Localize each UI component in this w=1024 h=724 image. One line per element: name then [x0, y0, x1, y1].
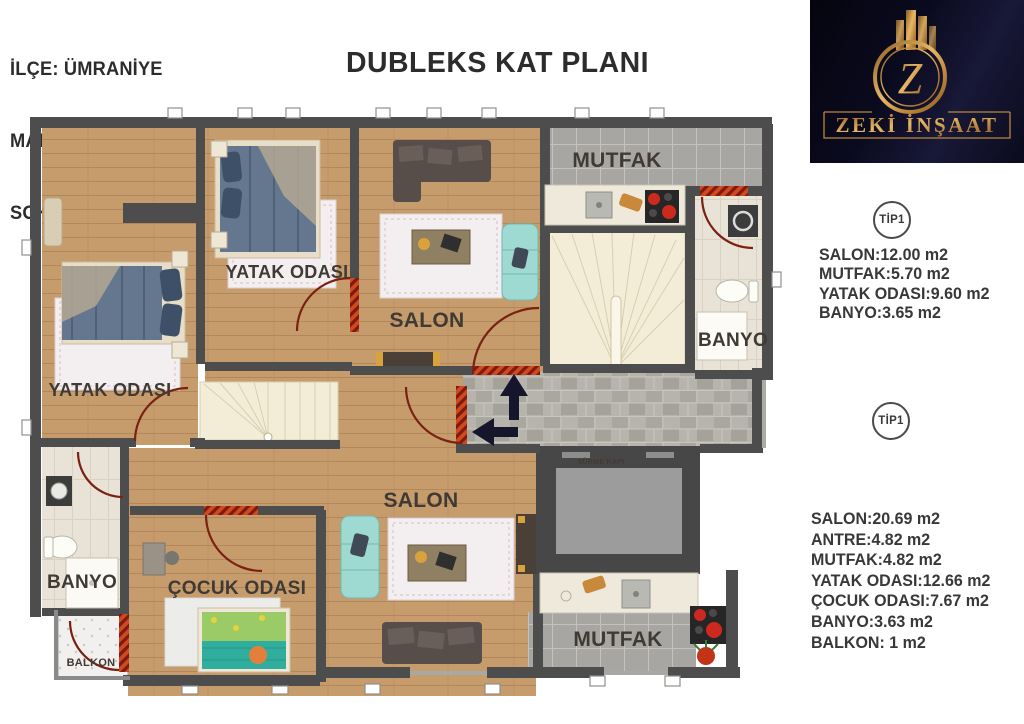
wall-bedrooms-divider — [196, 124, 205, 364]
wall-left-upper — [30, 117, 41, 446]
tv-unit — [376, 352, 440, 366]
wall-top — [30, 117, 772, 128]
floor-plan: YATAK ODASI YATAK ODASI SALON MUTFAK BAN… — [0, 105, 800, 717]
table-item — [415, 551, 427, 563]
pillow — [159, 303, 183, 337]
logo-graphic: Z ZEKİ İNŞAAT — [810, 0, 1024, 163]
monogram-letter: Z — [898, 54, 923, 103]
toilet — [716, 280, 748, 302]
room-label-salon-upper: SALON — [390, 309, 465, 332]
wall-right-corridor — [752, 368, 763, 453]
kid-bed-bottom — [202, 641, 286, 669]
area-line: YATAK ODASI:12.66 m2 — [811, 571, 990, 592]
pillow — [220, 187, 242, 219]
cushion — [399, 145, 424, 162]
wall-stair-bottom — [543, 364, 688, 373]
wall-kidsroom-top-left — [130, 506, 204, 515]
kid-bed-top — [202, 612, 286, 641]
wall-left-lower — [30, 443, 41, 617]
company-name: ZEKİ İNŞAAT — [835, 113, 998, 137]
wall-bedroom2-salon — [350, 124, 359, 278]
wall-kidsroom-right — [316, 510, 326, 682]
area-line: YATAK ODASI:9.60 m2 — [819, 285, 989, 304]
room-label-bedroom2: YATAK ODASI — [226, 262, 349, 282]
monogram-ring: Z — [875, 42, 945, 112]
room-label-kidsroom: ÇOCUK ODASI — [168, 578, 306, 599]
wall-salon-bottom-right — [487, 667, 604, 678]
area-line: BANYO:3.65 m2 — [819, 304, 989, 323]
area-line: MUTFAK:5.70 m2 — [819, 265, 989, 284]
kid-pillow — [249, 646, 267, 664]
area-line: ANTRE:4.82 m2 — [811, 530, 990, 551]
wall-kitchen-right — [726, 570, 738, 674]
upper-kitchen-counter — [545, 185, 685, 225]
wall-salon-bottom — [350, 366, 473, 375]
room-label-balcony: BALKON — [67, 657, 116, 669]
nightstand — [211, 141, 227, 157]
room-label-bath-upper: BANYO — [698, 330, 768, 351]
room-label-bath-lower: BANYO — [47, 572, 117, 593]
area-line: BALKON: 1 m2 — [811, 633, 990, 654]
table-item — [418, 238, 430, 250]
wall-salon-kitchen — [540, 124, 550, 366]
room-label-kitchen-lower: MUTFAK — [573, 628, 662, 651]
duplex-staircase — [200, 382, 338, 441]
desk-chair — [165, 551, 179, 565]
cushion — [387, 627, 414, 645]
wall-corridor-bottom — [456, 444, 540, 453]
wall-bath-bottom — [695, 370, 772, 379]
page-title: DUBLEKS KAT PLANI — [346, 47, 649, 80]
area-line: ÇOCUK ODASI:7.67 m2 — [811, 591, 990, 612]
nightstand — [172, 342, 188, 358]
wall-stair-bath — [685, 195, 695, 373]
wall-bedroom2-bottom — [205, 362, 352, 371]
company-logo: Z ZEKİ İNŞAAT — [810, 0, 1024, 163]
room-label-salon-lower: SALON — [384, 489, 459, 512]
wall-closet-block — [123, 203, 205, 223]
area-line: MUTFAK:4.82 m2 — [811, 550, 990, 571]
wall-bath-hall — [120, 443, 129, 617]
district-label: İLÇE: ÜMRANİYE — [10, 58, 270, 82]
unit1-area-list: SALON:12.00 m2 MUTFAK:5.70 m2 YATAK ODAS… — [819, 246, 989, 323]
type-badge-2: TİP1 — [872, 402, 910, 440]
unit2-area-list: SALON:20.69 m2 ANTRE:4.82 m2 MUTFAK:4.82… — [811, 509, 990, 653]
cushion — [447, 627, 475, 646]
desk — [143, 543, 165, 575]
area-line: SALON:20.69 m2 — [811, 509, 990, 530]
area-line: BANYO:3.63 m2 — [811, 612, 990, 633]
cushion — [417, 631, 445, 650]
main-staircase — [548, 232, 685, 372]
floor-plan-page: İLÇE: ÜMRANİYE MAHALLE: AŞAĞI DUDULLU SO… — [0, 0, 1024, 724]
sliding-door-leaf — [562, 452, 590, 458]
wall-kidsroom-bottom — [123, 675, 320, 686]
room-label-bedroom1: YATAK ODASI — [49, 380, 172, 400]
washing-machine — [728, 205, 758, 237]
wall-kidsroom-top-right — [258, 506, 324, 515]
type-badge-1: TİP1 — [873, 201, 911, 239]
wall-hall-bottom — [195, 440, 340, 449]
wall-corridor-bottom-right — [700, 444, 752, 453]
sofa-teal — [341, 516, 379, 598]
wall-salon-bottom-left — [325, 667, 410, 678]
room-label-kitchen-upper: MUTFAK — [572, 149, 661, 172]
label-sliding-door: SÜRME KAPI — [578, 457, 625, 466]
sliding-door-leaf — [646, 452, 674, 458]
nightstand — [211, 232, 227, 248]
cushion — [457, 145, 482, 162]
stair-newel — [264, 433, 272, 441]
cushion — [427, 148, 452, 165]
area-line: SALON:12.00 m2 — [819, 246, 989, 265]
pillow — [159, 268, 183, 302]
nightstand — [172, 251, 188, 267]
dresser — [44, 198, 62, 246]
counter — [540, 573, 698, 613]
